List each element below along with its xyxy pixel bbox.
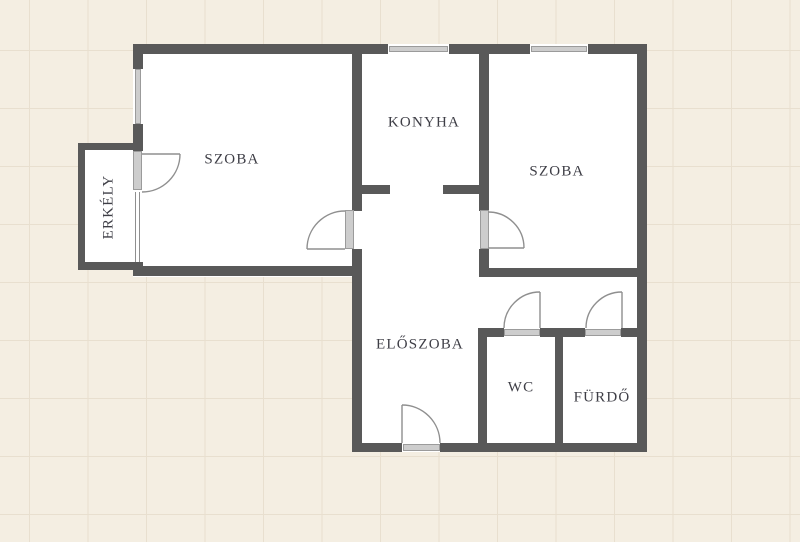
room-label-szoba-left: SZOBA xyxy=(204,152,259,169)
wall-bottom-right-segment xyxy=(440,443,647,452)
kitchen-window xyxy=(389,46,448,52)
wall-bedroom-left-bottom xyxy=(133,266,362,276)
wall-top-left-segment xyxy=(133,44,388,54)
entry-door-sill xyxy=(403,444,440,451)
room-label-furdo: FÜRDŐ xyxy=(574,390,631,407)
wall-wc-left xyxy=(478,328,487,452)
room-label-eloszoba: ELŐSZOBA xyxy=(376,337,464,354)
balcony-door-leaf xyxy=(133,151,142,190)
bedroom-left-door-leaf xyxy=(345,210,354,249)
wall-kitchen-bottom-left xyxy=(362,185,390,194)
wall-wc-bathroom-divider xyxy=(555,337,563,443)
room-label-wc: WC xyxy=(508,380,535,397)
balcony-wall-bottom xyxy=(85,262,133,270)
room-label-konyha: KONYHA xyxy=(388,115,460,132)
wall-left-upper-segment xyxy=(133,44,143,67)
wall-middle-left-upper xyxy=(352,44,362,211)
wall-wc-top-middle xyxy=(540,328,585,337)
wall-wc-top-left xyxy=(487,328,504,337)
bedroom-right-window xyxy=(531,46,587,52)
wc-door-sill xyxy=(504,329,540,336)
floor-plan: SZOBA KONYHA SZOBA ERKÉLY ELŐSZOBA WC FÜ… xyxy=(0,0,800,542)
wall-right xyxy=(637,44,647,452)
room-label-szoba-right: SZOBA xyxy=(529,164,584,181)
balcony-window xyxy=(135,192,140,262)
wall-middle-right-upper xyxy=(479,44,489,211)
room-fill-lower-block xyxy=(352,185,647,452)
bedroom-left-window xyxy=(135,69,141,124)
wall-middle-left-lower xyxy=(352,249,362,452)
bedroom-right-door-leaf xyxy=(480,210,489,249)
wall-bedroom-right-bottom xyxy=(479,268,647,277)
wall-left-middle-segment xyxy=(133,126,143,151)
room-label-erkely: ERKÉLY xyxy=(101,175,118,240)
wall-wc-top-right xyxy=(621,328,647,337)
bathroom-door-sill xyxy=(585,329,621,336)
balcony-wall-left xyxy=(78,143,85,270)
wall-top-middle-segment xyxy=(449,44,530,54)
balcony-wall-top xyxy=(85,143,133,150)
wall-bottom-left-segment xyxy=(352,443,402,452)
